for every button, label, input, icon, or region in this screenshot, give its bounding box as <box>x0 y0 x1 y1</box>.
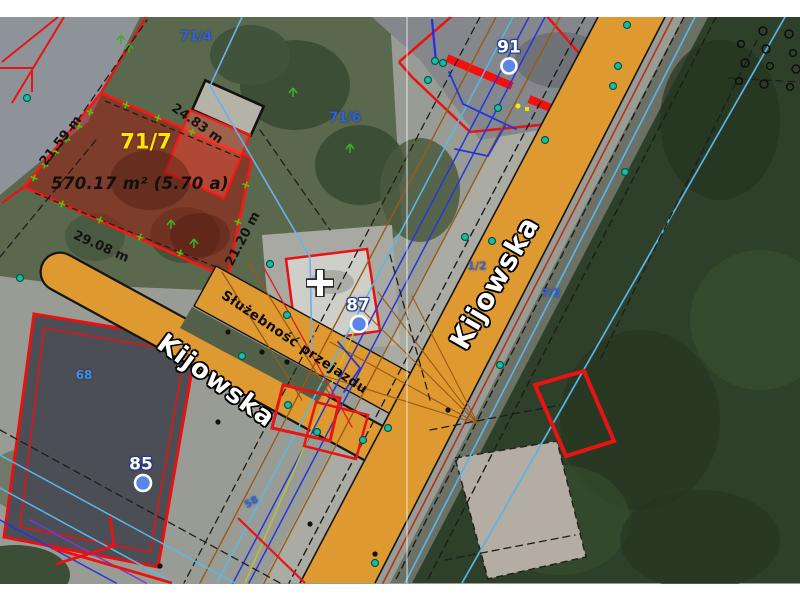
parcel-label-7-2: 7/2 <box>541 288 560 299</box>
parcel-label-71-4: 71/4 <box>180 31 212 44</box>
label-58: 58 <box>243 495 260 511</box>
parcel-id-label: 71/7 <box>120 132 172 153</box>
marker-label-87: 87 <box>346 298 370 315</box>
building-label-68: 68 <box>76 369 93 381</box>
map-labels: 71/7 570.17 m² (5.70 a) 21.59 m 24.83 m … <box>0 0 800 600</box>
measurement-bottom: 29.08 m <box>71 229 130 265</box>
parcel-area-label: 570.17 m² (5.70 a) <box>51 176 229 193</box>
measurement-top: 24.83 m <box>169 102 225 147</box>
map-viewport[interactable]: 71/7 570.17 m² (5.70 a) 21.59 m 24.83 m … <box>0 0 800 600</box>
measurement-left: 21.59 m <box>38 114 85 169</box>
street-label-kijowska-side: Kijowska <box>152 330 279 432</box>
street-label-kijowska-main: Kijowska <box>446 212 544 354</box>
parcel-label-71-6: 71/6 <box>329 112 361 125</box>
marker-label-85: 85 <box>129 457 153 474</box>
measurement-right: 21.20 m <box>223 210 262 268</box>
marker-label-91: 91 <box>497 40 521 57</box>
